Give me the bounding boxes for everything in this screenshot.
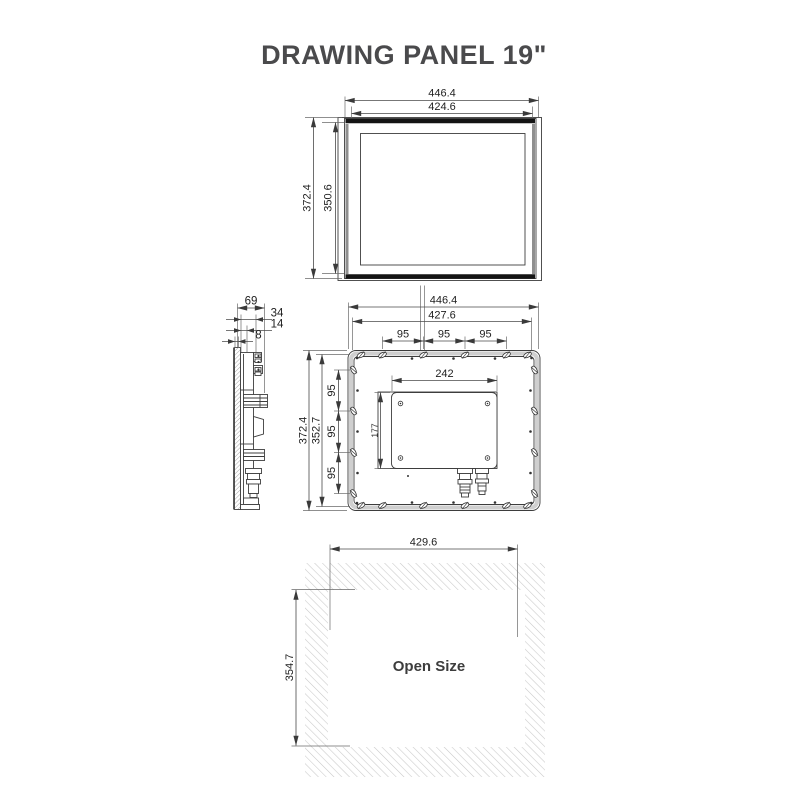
dim-box-width: 242 xyxy=(435,368,453,380)
dim-cutout-width: 429.6 xyxy=(410,537,438,549)
dim-back-pitch-top-3: 95 xyxy=(479,329,491,341)
dim-cutout-height: 354.7 xyxy=(284,654,296,682)
box-screw xyxy=(485,401,490,406)
box-screw xyxy=(398,401,403,406)
dim-side-depth-bezel: 8 xyxy=(255,330,261,342)
dim-front-height-outer: 372.4 xyxy=(302,184,314,212)
dim-back-height-clips: 352.7 xyxy=(311,417,323,445)
back-connector-1 xyxy=(458,469,473,498)
technical-drawing-svg: DRAWING PANEL 19" 446.4 424.6 372.4 350.… xyxy=(0,0,800,800)
front-view: 446.4 424.6 372.4 350.6 xyxy=(302,88,542,281)
dim-back-pitch-side-3: 95 xyxy=(326,467,338,479)
page-title: DRAWING PANEL 19" xyxy=(261,40,547,70)
back-electronics-box xyxy=(392,393,498,469)
back-view: 446.4 427.6 95 95 95 372.4 352.7 95 95 xyxy=(298,286,541,511)
side-rail-block xyxy=(244,395,268,408)
box-screw xyxy=(398,456,403,461)
box-screw xyxy=(485,456,490,461)
side-bezel xyxy=(235,348,241,510)
dim-side-depth-mid: 14 xyxy=(271,319,284,331)
front-screen xyxy=(361,134,526,266)
dim-front-width-screen: 424.6 xyxy=(428,101,456,113)
dim-back-width-clips: 427.6 xyxy=(428,310,456,322)
dim-back-height-outer: 372.4 xyxy=(298,417,310,445)
dim-back-pitch-side-2: 95 xyxy=(326,425,338,437)
cutout-view: Open Size 429.6 354.7 xyxy=(284,537,545,778)
drawing-page: DRAWING PANEL 19" 446.4 424.6 372.4 350.… xyxy=(0,0,800,800)
dim-front-width-outer: 446.4 xyxy=(428,88,456,100)
dim-box-height: 177 xyxy=(370,423,380,437)
dim-front-height-screen: 350.6 xyxy=(323,184,335,212)
open-size-label: Open Size xyxy=(393,658,466,675)
dim-back-pitch-top-1: 95 xyxy=(397,329,409,341)
dim-back-width-outer: 446.4 xyxy=(430,295,458,307)
dim-back-pitch-side-1: 95 xyxy=(326,384,338,396)
side-view: 69 34 14 8 xyxy=(222,296,284,510)
dim-side-depth-total: 69 xyxy=(245,296,258,308)
side-bump xyxy=(254,417,264,438)
dim-back-pitch-top-2: 95 xyxy=(438,329,450,341)
